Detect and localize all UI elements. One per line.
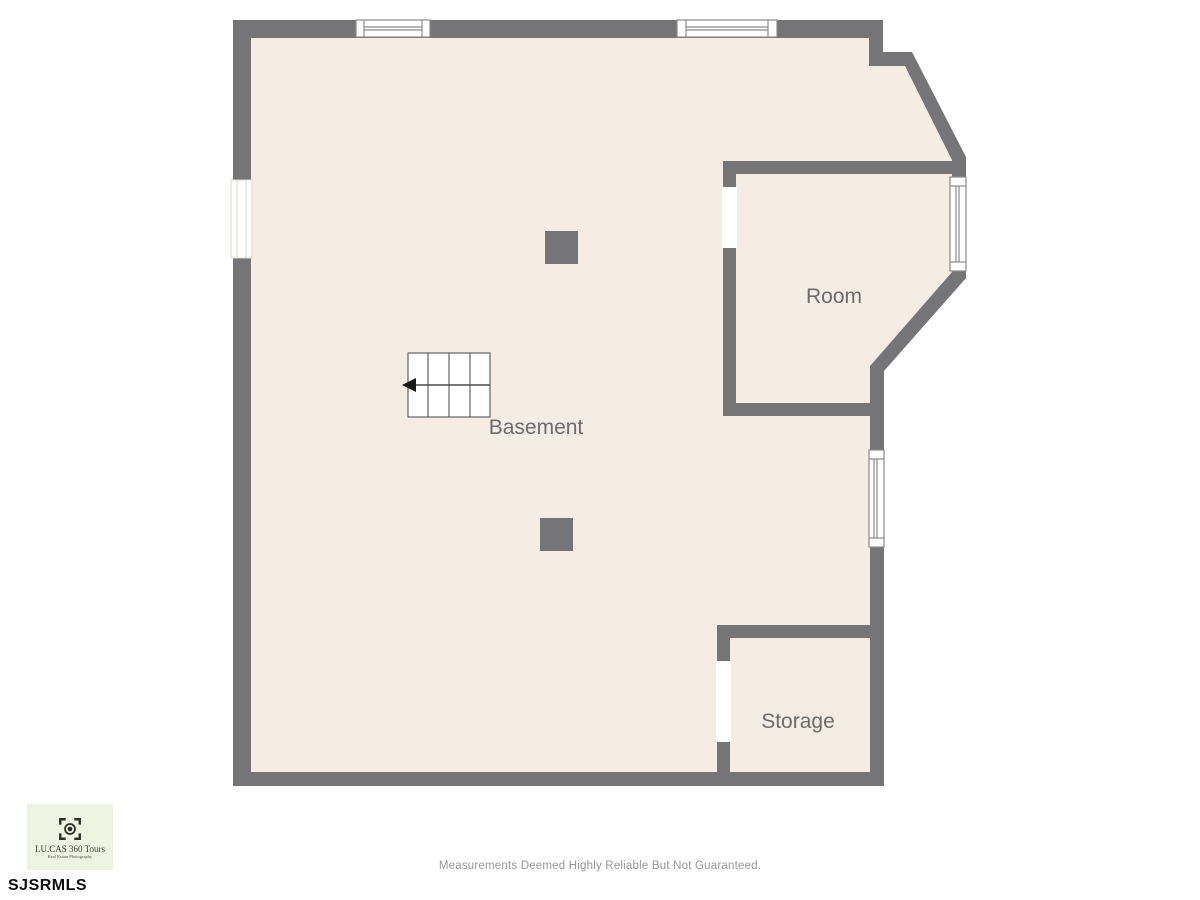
window [869, 450, 884, 547]
room-door-opening [722, 187, 737, 248]
floor-plan-page: Basement Room Storage LU.CAS 360 Tours R… [0, 0, 1200, 900]
window [356, 20, 430, 37]
storage-door-opening [716, 661, 731, 742]
window [231, 180, 252, 258]
storage-label: Storage [761, 710, 835, 733]
room-left-wall-upper [723, 161, 736, 187]
support-post [540, 518, 573, 551]
mls-watermark: SJSRMLS [8, 877, 87, 895]
basement-label: Basement [489, 416, 584, 439]
storage-top-wall [717, 625, 884, 638]
room-label: Room [806, 285, 862, 308]
room-left-wall-lower [723, 248, 736, 416]
storage-left-wall-upper [717, 625, 730, 661]
window [677, 20, 777, 37]
staircase [402, 353, 490, 417]
support-post [545, 231, 578, 264]
floor-plan-svg: Basement Room Storage [0, 0, 1200, 900]
room-bottom-wall [723, 403, 884, 416]
camera-viewfinder-icon [57, 816, 83, 842]
window [950, 177, 966, 271]
measurements-disclaimer: Measurements Deemed Highly Reliable But … [0, 860, 1200, 872]
storage-left-wall-lower [717, 742, 730, 774]
room-top-wall [723, 161, 952, 174]
logo-tagline: Real Estate Photography [48, 854, 93, 859]
logo-title: LU.CAS 360 Tours [35, 844, 105, 854]
